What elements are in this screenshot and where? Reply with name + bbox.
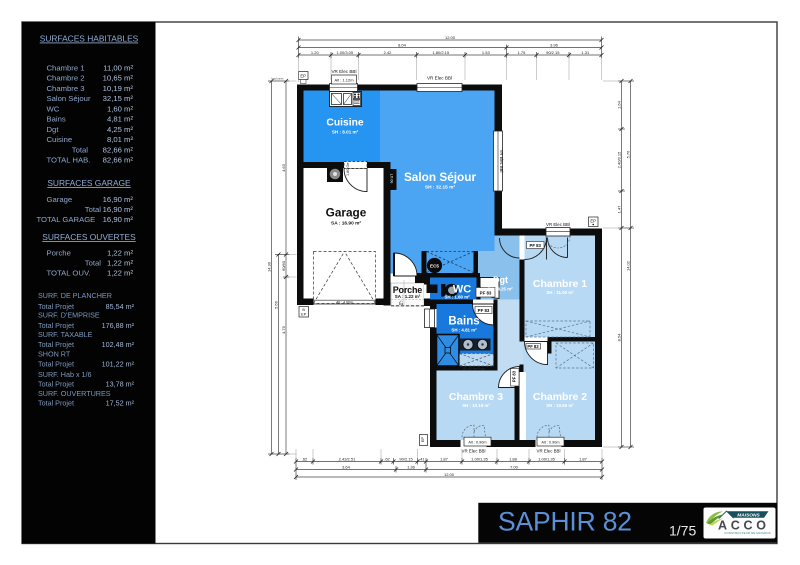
- svg-text:2.40/3.15: 2.40/3.15: [616, 151, 621, 168]
- svg-text:VR Elec BBl: VR Elec BBl: [537, 449, 561, 454]
- svg-text:SH : 4.25 m²: SH : 4.25 m²: [487, 287, 513, 292]
- svg-text:1.80 Oe: 1.80 Oe: [346, 162, 350, 176]
- svg-text:SURF. DE PLANCHER: SURF. DE PLANCHER: [38, 291, 112, 300]
- svg-text:Chambre 1: Chambre 1: [47, 63, 85, 72]
- svg-text:Chambre 1: Chambre 1: [533, 278, 587, 290]
- svg-text:Porche: Porche: [47, 248, 71, 257]
- svg-text:SH : 1.60 m²: SH : 1.60 m²: [444, 295, 470, 300]
- svg-text:1.64: 1.64: [616, 100, 621, 109]
- svg-text:VR Elec BBl: VR Elec BBl: [499, 150, 504, 173]
- svg-text:.62: .62: [302, 456, 308, 461]
- svg-text:PF 83: PF 83: [478, 308, 490, 313]
- svg-text:SH : 10.65 m²: SH : 10.65 m²: [546, 403, 574, 408]
- svg-text:16,90 m²: 16,90 m²: [103, 215, 134, 224]
- svg-text:1/75: 1/75: [669, 523, 696, 539]
- svg-text:60/60: 60/60: [281, 260, 286, 271]
- svg-text:.62: .62: [384, 456, 390, 461]
- svg-text:EP: EP: [421, 437, 425, 443]
- svg-text:Chambre 3: Chambre 3: [449, 391, 503, 403]
- svg-text:101,22 m²: 101,22 m²: [102, 360, 135, 369]
- svg-text:Garage: Garage: [47, 195, 73, 204]
- svg-text:102,48 m²: 102,48 m²: [102, 340, 135, 349]
- svg-text:82,66 m²: 82,66 m²: [103, 156, 134, 165]
- svg-text:B: B: [302, 308, 305, 312]
- svg-text:11,00 m²: 11,00 m²: [103, 63, 133, 72]
- svg-text:.90/2.15: .90/2.15: [398, 456, 413, 461]
- svg-text:SURF. Hab x 1/6: SURF. Hab x 1/6: [38, 370, 92, 379]
- svg-text:VR Elec BBl: VR Elec BBl: [546, 222, 570, 227]
- svg-text:SH : 11.00 m²: SH : 11.00 m²: [546, 290, 574, 295]
- svg-text:1,60 m²: 1,60 m²: [107, 104, 134, 113]
- svg-text:85,54 m²: 85,54 m²: [106, 302, 135, 311]
- svg-text:1.88: 1.88: [509, 456, 518, 461]
- svg-text:PF 83: PF 83: [529, 243, 541, 248]
- svg-text:CONSTRUCTEUR DE MAISONS: CONSTRUCTEUR DE MAISONS: [724, 531, 770, 535]
- svg-text:TOTAL OUV.: TOTAL OUV.: [47, 269, 91, 278]
- svg-text:SH : 10.19 m²: SH : 10.19 m²: [462, 403, 490, 408]
- svg-text:3.64: 3.64: [342, 464, 351, 469]
- svg-text:SURFACES OUVERTES: SURFACES OUVERTES: [42, 232, 136, 242]
- svg-text:Alt : 0.90m: Alt : 0.90m: [468, 440, 486, 444]
- svg-text:16,90 m²: 16,90 m²: [103, 195, 134, 204]
- svg-text:SH : 32.15 m²: SH : 32.15 m²: [425, 185, 456, 191]
- svg-text:TOTAL HAB.: TOTAL HAB.: [47, 156, 91, 165]
- svg-text:4,25 m²: 4,25 m²: [107, 125, 134, 134]
- svg-text:Total: Total: [72, 145, 89, 154]
- svg-text:Total Projet: Total Projet: [38, 340, 74, 349]
- svg-text:Alt : 0.90m: Alt : 0.90m: [541, 440, 559, 444]
- svg-text:VR Elec BBl: VR Elec BBl: [427, 76, 452, 81]
- svg-text:SH : 8.01 m²: SH : 8.01 m²: [332, 130, 359, 135]
- svg-text:1.87: 1.87: [579, 456, 588, 461]
- svg-text:7.00: 7.00: [510, 464, 519, 469]
- svg-text:176,88 m²: 176,88 m²: [102, 321, 135, 330]
- svg-text:1.47: 1.47: [616, 205, 621, 214]
- svg-text:Total: Total: [85, 258, 102, 267]
- svg-text:1.36: 1.36: [407, 464, 416, 469]
- svg-text:14.30: 14.30: [266, 261, 271, 272]
- svg-text:1.53: 1.53: [482, 50, 491, 55]
- svg-text:1.80/2.15: 1.80/2.15: [432, 50, 449, 55]
- svg-text:1,22 m²: 1,22 m²: [107, 269, 134, 278]
- svg-text:17,52 m²: 17,52 m²: [106, 399, 135, 408]
- svg-text:1.00/1.35: 1.00/1.35: [538, 456, 555, 461]
- svg-text:SH : 4.81 m²: SH : 4.81 m²: [451, 328, 477, 333]
- svg-text:Salon Séjour: Salon Séjour: [47, 94, 91, 103]
- svg-text:Total: Total: [85, 205, 102, 214]
- svg-text:13,78 m²: 13,78 m²: [106, 380, 135, 389]
- svg-text:4.63: 4.63: [281, 163, 286, 172]
- svg-text:SURFACES HABITABLES: SURFACES HABITABLES: [40, 34, 139, 44]
- svg-text:SURFACES GARAGE: SURFACES GARAGE: [47, 178, 131, 188]
- svg-text:EC5: EC5: [430, 264, 439, 269]
- svg-text:1.20: 1.20: [311, 50, 320, 55]
- svg-text:82,66 m²: 82,66 m²: [103, 145, 134, 154]
- svg-text:Alt : 1.12m: Alt : 1.12m: [334, 78, 354, 83]
- svg-text:Total Projet: Total Projet: [38, 321, 74, 330]
- svg-text:Bains: Bains: [47, 115, 66, 124]
- svg-text:2.43/2.51: 2.43/2.51: [339, 456, 356, 461]
- svg-text:8.04: 8.04: [398, 42, 407, 47]
- svg-text:2.42: 2.42: [384, 50, 393, 55]
- svg-text:1,22 m²: 1,22 m²: [107, 258, 134, 267]
- svg-text:Chambre 3: Chambre 3: [47, 84, 85, 93]
- svg-text:32,15 m²: 32,15 m²: [103, 94, 134, 103]
- svg-text:12.00: 12.00: [445, 35, 456, 40]
- svg-text:SURF. TAXABLE: SURF. TAXABLE: [38, 330, 93, 339]
- svg-text:Cuisine: Cuisine: [47, 135, 73, 144]
- svg-text:4,81 m²: 4,81 m²: [107, 115, 134, 124]
- svg-text:90/2.15: 90/2.15: [546, 50, 560, 55]
- svg-text:VR Elec BBl: VR Elec BBl: [462, 449, 486, 454]
- svg-text:1.75: 1.75: [518, 50, 527, 55]
- svg-text:1.00/1.35: 1.00/1.35: [471, 456, 488, 461]
- svg-text:8.54: 8.54: [616, 333, 621, 342]
- svg-text:1.00/3.05: 1.00/3.05: [336, 50, 353, 55]
- svg-text:10,19 m²: 10,19 m²: [103, 84, 134, 93]
- svg-text:SAPHIR 82: SAPHIR 82: [498, 507, 632, 537]
- svg-text:10,65 m²: 10,65 m²: [103, 74, 134, 83]
- svg-text:3.96: 3.96: [550, 42, 559, 47]
- svg-text:Chambre 2: Chambre 2: [47, 74, 85, 83]
- svg-text:Total Projet: Total Projet: [38, 399, 74, 408]
- svg-text:SA : 1.22 m²: SA : 1.22 m²: [395, 294, 421, 299]
- svg-text:hachures: hachures: [271, 77, 284, 81]
- svg-text:TOTAL GARAGE: TOTAL GARAGE: [37, 215, 96, 224]
- svg-text:SA : 16.90 m²: SA : 16.90 m²: [331, 221, 361, 227]
- svg-text:4.79: 4.79: [281, 325, 286, 334]
- svg-text:EP: EP: [301, 313, 307, 317]
- svg-text:Dgt: Dgt: [47, 125, 60, 134]
- svg-text:Dgt: Dgt: [493, 275, 508, 285]
- svg-text:WC: WC: [47, 104, 60, 113]
- svg-text:.41: .41: [419, 456, 425, 461]
- svg-text:SURF. OUVERTURES: SURF. OUVERTURES: [38, 389, 111, 398]
- svg-text:60 x 60 lave linge: 60 x 60 lave linge: [463, 366, 485, 370]
- svg-text:EP: EP: [300, 74, 306, 79]
- svg-text:1.87: 1.87: [440, 456, 449, 461]
- svg-text:Cuisine: Cuisine: [326, 118, 363, 129]
- svg-text:Salon Séjour: Salon Séjour: [404, 170, 477, 184]
- svg-text:12.00: 12.00: [444, 472, 455, 477]
- svg-text:Total Projet: Total Projet: [38, 380, 74, 389]
- svg-text:Total Projet: Total Projet: [38, 360, 74, 369]
- svg-text:SURF. D'EMPRISE: SURF. D'EMPRISE: [38, 311, 100, 320]
- svg-text:90 UT: 90 UT: [390, 173, 394, 184]
- svg-text:5.66: 5.66: [273, 300, 278, 309]
- svg-text:1,22 m²: 1,22 m²: [107, 248, 134, 257]
- svg-text:VR Elec BBl: VR Elec BBl: [331, 69, 356, 74]
- svg-text:5.76: 5.76: [625, 150, 630, 159]
- svg-text:14.02: 14.02: [625, 260, 630, 271]
- svg-text:8,01 m²: 8,01 m²: [107, 135, 134, 144]
- svg-text:1.31: 1.31: [581, 50, 590, 55]
- svg-text:SHON RT: SHON RT: [38, 350, 71, 359]
- svg-text:EP: EP: [590, 219, 596, 224]
- svg-text:PF 83: PF 83: [527, 344, 539, 349]
- svg-text:16,90 m²: 16,90 m²: [103, 205, 134, 214]
- svg-text:Garage: Garage: [326, 206, 367, 220]
- svg-text:PF 83: PF 83: [511, 370, 516, 382]
- svg-text:Bains: Bains: [448, 316, 479, 328]
- svg-text:Chambre 2: Chambre 2: [533, 391, 587, 403]
